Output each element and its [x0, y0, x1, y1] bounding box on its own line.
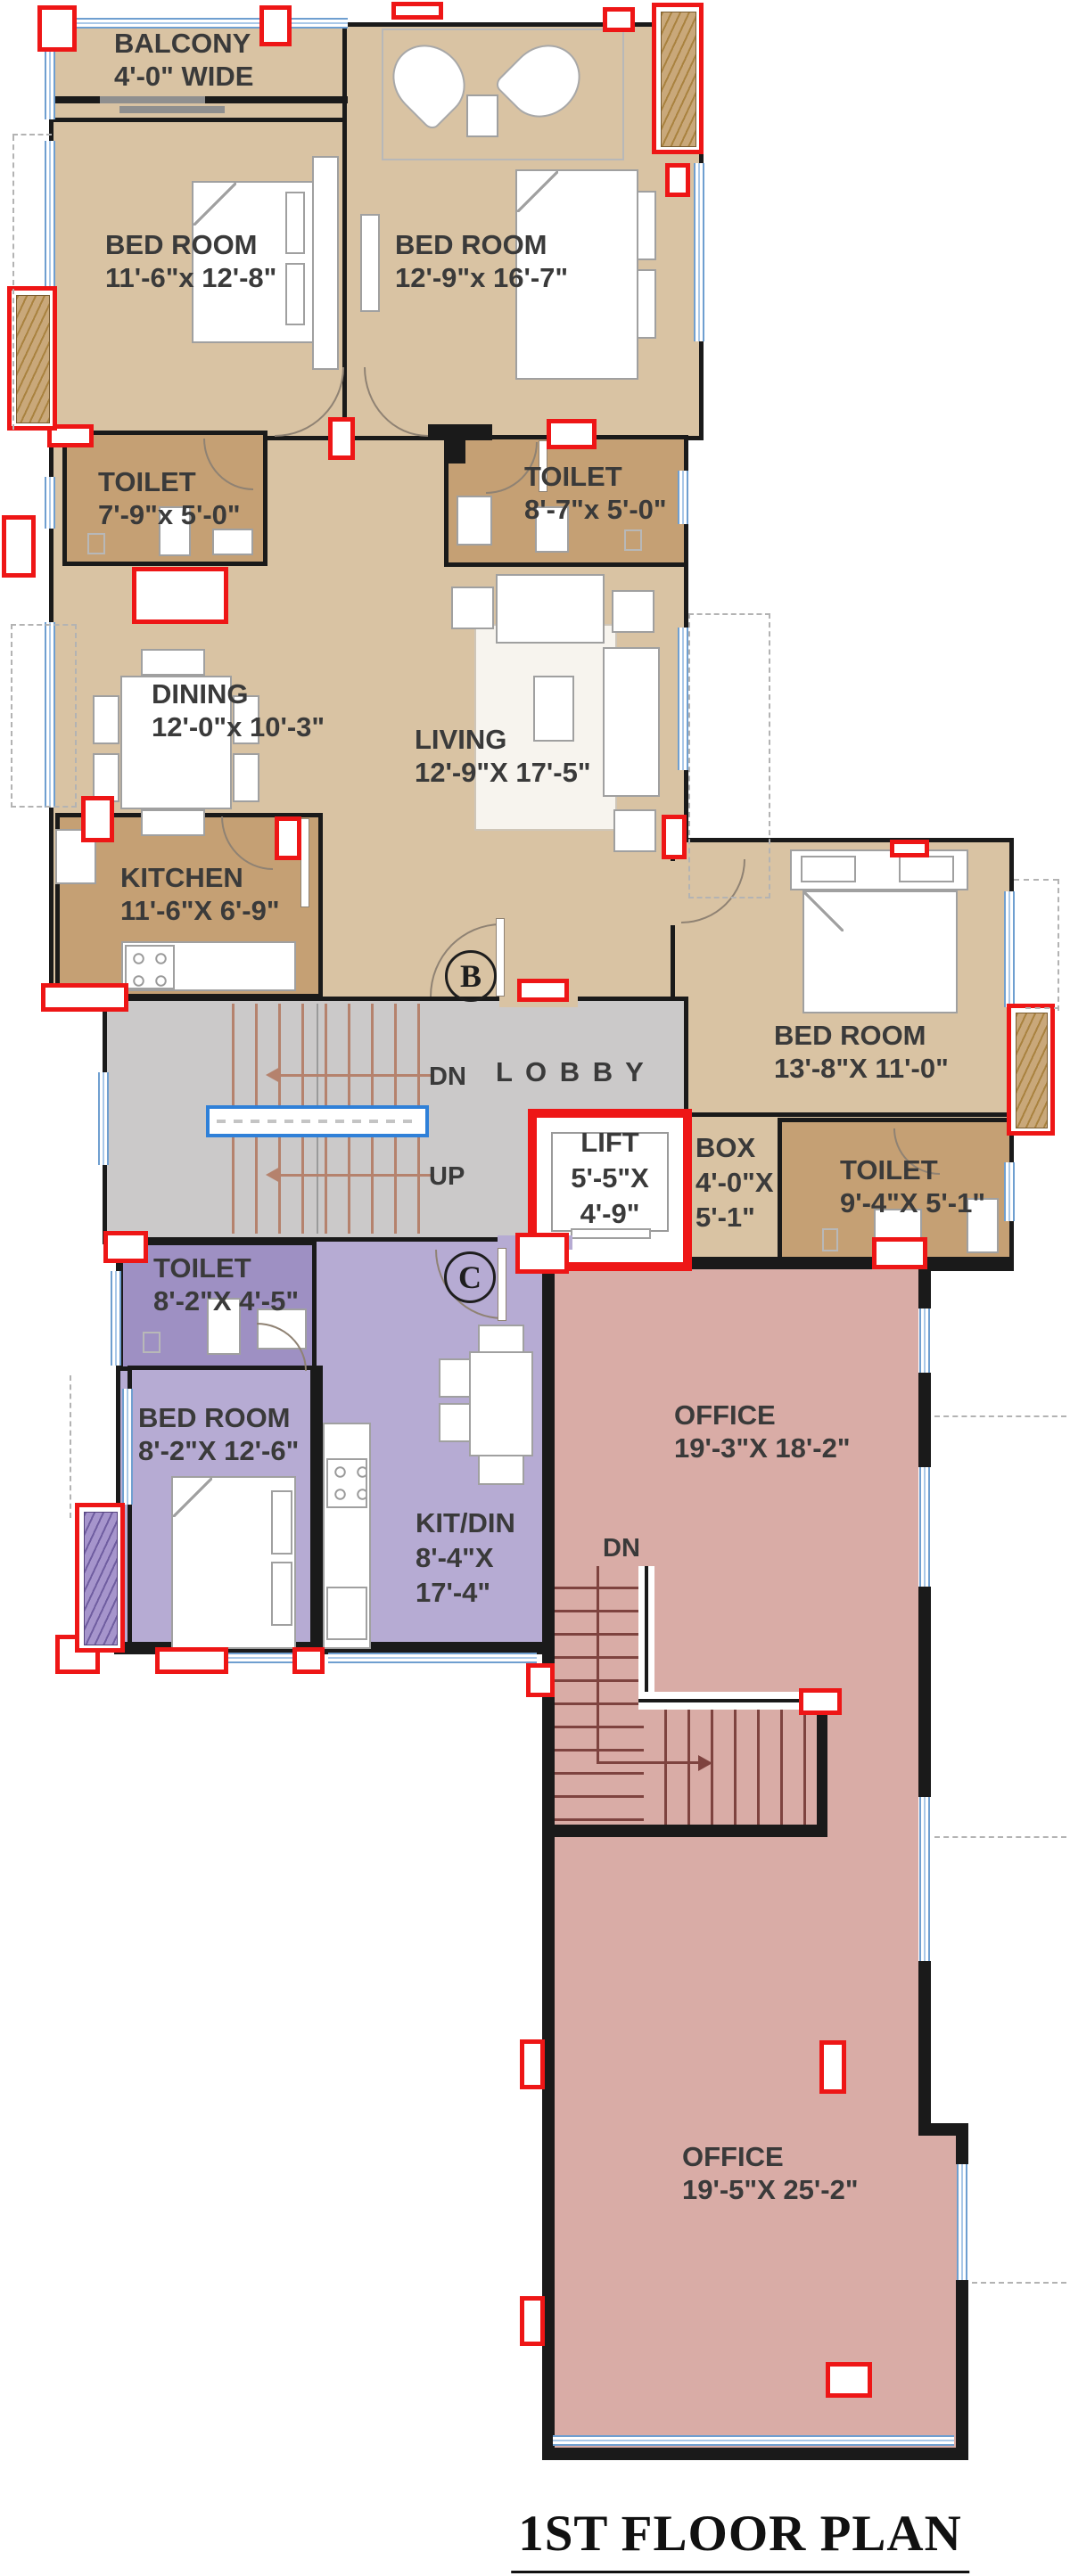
lobby-up-label: UP [429, 1161, 465, 1194]
office-right-wall-d [918, 1961, 931, 2136]
office-stair-lower-flight [644, 1710, 820, 1825]
hall-partition-stub-v [448, 440, 465, 464]
balcony-sliding-door-a [100, 96, 205, 103]
column [37, 5, 77, 52]
office-floor-lower-ext [918, 2136, 961, 2451]
lobby-dn-arrow-shaft [278, 1074, 434, 1077]
ac-hatch-bedroom-c [84, 1512, 118, 1645]
projection-line [12, 135, 14, 430]
office-stair-bottom-wall [542, 1825, 824, 1837]
column [662, 815, 687, 859]
lobby-up-arrow-shaft [278, 1174, 434, 1177]
unit-c-bottom-window-b [328, 1653, 537, 1663]
living-sofa-2seat [603, 647, 660, 797]
toilet1-left-window [45, 477, 55, 529]
unit-b-entry-leaf [496, 918, 505, 997]
toilet1-label: TOILET7'-9"x 5'-0" [98, 465, 241, 531]
office-stair-arrow-shaft-v [597, 1566, 599, 1764]
projection-line [934, 1415, 1066, 1417]
office-right-wall-f [956, 2280, 968, 2460]
toilet2-label: TOILET8'-7"x 5'-0" [524, 460, 667, 526]
office-right-window-b [919, 1467, 930, 1587]
office-stair-right-wall [817, 1710, 827, 1837]
column [515, 1233, 569, 1274]
dining-chair-bottom [141, 809, 205, 836]
column [41, 983, 128, 1012]
projection-line [1025, 1007, 1059, 1009]
projection-line [70, 1375, 71, 1518]
living-arm-right [612, 590, 654, 633]
toilet1-tap [87, 533, 105, 554]
lobby-dn-label: DN [429, 1061, 466, 1094]
unit-b-letter: B [460, 958, 481, 994]
lobby-dn-arrow-head [266, 1067, 280, 1083]
projection-outline [11, 624, 77, 808]
office-left-wall [542, 1237, 555, 2460]
kitdin-label: KIT/DIN8'-4"X17'-4" [416, 1505, 515, 1610]
bedroom3-pillow-a [801, 856, 856, 882]
column [2, 515, 36, 578]
office-stair-arrow-shaft-h [597, 1761, 700, 1764]
floor-plan-canvas: BALCONY4'-0" WIDE BED ROOM11'-6"x 12'-8"… [0, 0, 1070, 2576]
column [517, 979, 569, 1002]
kitdin-partition-wall [310, 1366, 323, 1654]
hall-partition-stub-h [428, 424, 492, 440]
bedroom2-right-window [694, 163, 704, 341]
balcony-label: BALCONY4'-0" WIDE [114, 27, 253, 93]
office-right-wall-e [956, 2136, 968, 2164]
kitdin-table [469, 1351, 533, 1456]
living-arm-left [451, 587, 494, 629]
office-right-window-c [919, 1797, 930, 1961]
office-right-window-d [957, 2164, 967, 2280]
kitchen-label: KITCHEN11'-6"X 6'-9" [120, 861, 280, 927]
office-step-wall [918, 2123, 968, 2136]
office-bottom-window [553, 2435, 954, 2446]
kitdin-chair-l2 [439, 1403, 471, 1442]
bedroom3-pillow-b [899, 856, 954, 882]
projection-line [934, 1836, 1066, 1838]
office-dn-label: DN [603, 1532, 640, 1565]
column [520, 2039, 545, 2089]
column [665, 163, 690, 197]
bedroom-c-bed-fold [173, 1478, 212, 1517]
office-stair-railing-h-line [638, 1699, 820, 1702]
plan-title: 1ST FLOOR PLAN [511, 2506, 969, 2573]
column [819, 2040, 846, 2094]
living-side-table [613, 809, 656, 852]
bedroom2-label: BED ROOM12'-9"x 16'-7" [395, 228, 568, 294]
bedroom-c-pillow-a [271, 1490, 292, 1555]
dining-chair-l1 [93, 695, 119, 744]
toilet1-sink [212, 529, 253, 555]
office-stair-upper-flight [555, 1566, 644, 1825]
kitdin-chair-top [478, 1325, 524, 1353]
column [520, 2296, 545, 2346]
column [890, 840, 929, 857]
kitdin-chair-l1 [439, 1358, 471, 1398]
column [799, 1688, 842, 1715]
projection-line [1014, 879, 1058, 881]
column [526, 1663, 555, 1697]
office-upper-label: OFFICE19'-3"X 18'-2" [674, 1399, 851, 1464]
unit-c-left-window-b [122, 1389, 133, 1505]
office-right-wall-b [918, 1373, 931, 1467]
unit-b-marker: B [445, 950, 497, 1002]
dining-chair-r2 [233, 753, 259, 802]
column [81, 796, 114, 842]
projection-outline [688, 613, 770, 898]
bedroom-c-pillow-b [271, 1562, 292, 1626]
unit-c-left-window-a [111, 1271, 121, 1366]
bedroom3-right-window [1004, 891, 1015, 1007]
bedroom1-left-window [45, 141, 55, 294]
bedroom1-bed-headboard [312, 156, 339, 370]
kitdin-chair-bottom [478, 1455, 524, 1485]
column [292, 1647, 325, 1674]
toilet2-right-window [678, 471, 688, 524]
bedroom2-pillow-b [637, 269, 656, 339]
living-right-window [678, 628, 688, 770]
column [391, 2, 443, 20]
balcony-sliding-door-b [119, 106, 225, 113]
office-stair-arrow-head [698, 1755, 712, 1771]
office-right-wall-c [918, 1587, 931, 1797]
column [275, 816, 301, 860]
office-stair-railing-v-line [645, 1566, 648, 1700]
unit-c-entry-leaf [498, 1248, 506, 1321]
living-sofa-3seat [496, 574, 605, 644]
living-label: LIVING12'-9"X 17'-5" [415, 723, 591, 789]
kitdin-sink [326, 1587, 367, 1640]
column [872, 1237, 927, 1269]
projection-line [1058, 879, 1059, 1011]
toilet2-sink [457, 496, 492, 546]
bedroom3-label: BED ROOM13'-8"X 11'-0" [774, 1019, 949, 1085]
kitchen-door-leaf [300, 818, 309, 907]
office-lower-label: OFFICE19'-5"X 25'-2" [682, 2140, 859, 2206]
bedroom-c-label: BED ROOM8'-2"X 12'-6" [138, 1401, 299, 1467]
bedroom1-pillow-b [285, 263, 305, 325]
column [328, 417, 355, 460]
column [103, 1231, 148, 1263]
projection-line [12, 134, 52, 135]
toilet3-label: TOILET9'-4"X 5'-1" [840, 1153, 985, 1219]
office-right-window-a [919, 1309, 930, 1373]
kitdin-stove [326, 1458, 367, 1508]
bedroom2-wardrobe [360, 214, 380, 312]
dining-chair-top [141, 649, 205, 676]
lobby-left-window [98, 1072, 109, 1165]
lobby-stair-landing [206, 1105, 429, 1137]
lift-label: LIFT5'-5"X4'-9" [571, 1125, 649, 1232]
bedroom1-pillow-a [285, 192, 305, 254]
lobby-label: L O B B Y [496, 1055, 646, 1088]
toilet3-right-window [1004, 1162, 1015, 1221]
bedroom2-bed-fold [517, 171, 558, 212]
column [603, 7, 635, 32]
toilet-c-tap [143, 1332, 160, 1353]
bedroom2-side-table [466, 94, 498, 137]
bedroom2-pillow-a [637, 191, 656, 260]
column [259, 5, 292, 46]
box-label: BOX4'-0"X5'-1" [695, 1130, 774, 1235]
office-bottom-wall [542, 2448, 968, 2460]
ac-hatch-bedroom3 [1016, 1013, 1048, 1128]
unit-c-marker: C [444, 1251, 496, 1303]
dining-chair-l2 [93, 753, 119, 802]
bedroom3-bed-fold [804, 892, 844, 931]
ac-hatch-bedroom1 [16, 295, 50, 423]
projection-line [972, 2282, 1066, 2284]
lobby-up-arrow-head [266, 1167, 280, 1183]
kitchen-stove [125, 945, 175, 989]
toilet-c-label: TOILET8'-2"X 4'-5" [153, 1251, 299, 1317]
toilet3-tap [822, 1228, 838, 1251]
bedroom1-label: BED ROOM11'-6"x 12'-8" [105, 228, 276, 294]
bedroom1-bed-fold [193, 183, 236, 226]
column [155, 1647, 228, 1674]
toilet2-tap [624, 529, 642, 551]
column [547, 419, 597, 449]
dining-label: DINING12'-0"x 10'-3" [152, 677, 325, 743]
column [826, 2362, 872, 2398]
landing-hatch [217, 1120, 418, 1123]
ac-hatch-bedroom2 [661, 12, 696, 147]
unit-c-letter: C [458, 1259, 481, 1295]
column [132, 567, 228, 624]
